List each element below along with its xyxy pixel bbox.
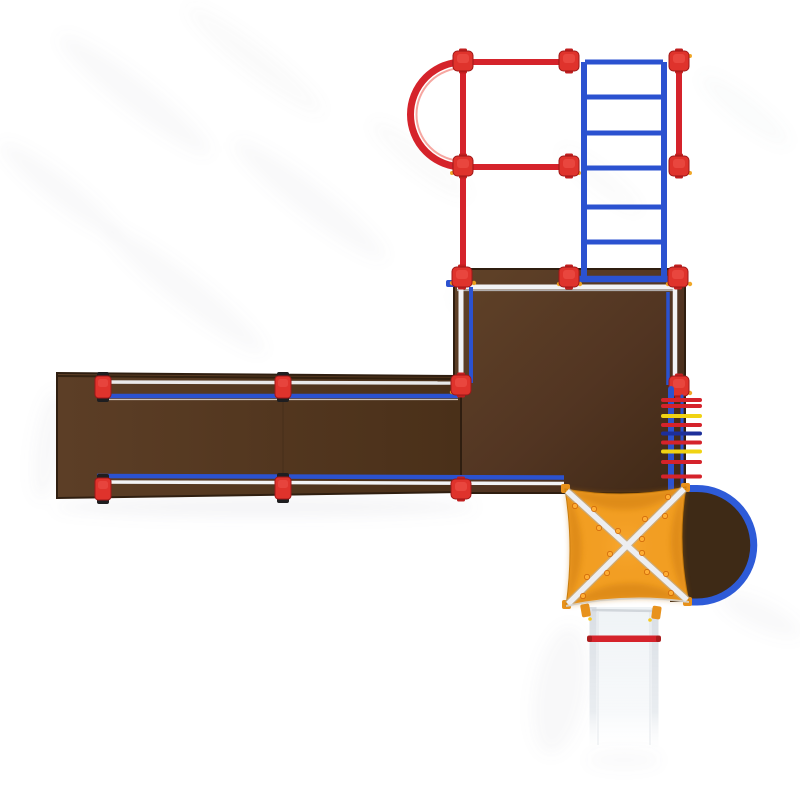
render-canvas <box>0 0 800 800</box>
ramp-post-cap <box>275 372 291 402</box>
post-cap <box>669 49 689 74</box>
slide-bracket-left <box>580 603 591 617</box>
ramp-bottom-rail-blue <box>97 476 564 478</box>
slide-rail-left <box>590 607 597 757</box>
straight-slide <box>580 603 662 757</box>
main-deck-surface <box>455 270 684 492</box>
post-cap <box>559 49 579 74</box>
slide-safety-bar-end <box>587 636 592 643</box>
slide-bracket-bolt <box>648 618 652 622</box>
playground-render <box>0 0 800 800</box>
post-cap <box>452 265 472 290</box>
post-cap <box>668 265 688 290</box>
slide-rail-right <box>652 608 659 757</box>
post-cap <box>453 49 473 74</box>
slide-bracket-bolt <box>588 617 592 621</box>
slide-top-edge <box>592 610 656 611</box>
slide-bracket-right <box>651 606 662 620</box>
main-deck <box>446 268 686 494</box>
shade-canopy <box>561 483 692 609</box>
slide-safety-bar-end <box>656 636 661 643</box>
ramp-post-cap <box>95 372 111 402</box>
post-cap <box>559 265 579 290</box>
slide-safety-bar <box>587 636 661 643</box>
ramp-bottom-rail-white <box>97 482 564 484</box>
ramp-post-cap <box>95 474 111 504</box>
post-cap <box>453 154 473 179</box>
slide-bed <box>597 607 652 757</box>
post-cap <box>451 373 471 398</box>
post-cap <box>451 477 471 502</box>
wall-climber <box>663 389 700 492</box>
post-cap <box>669 154 689 179</box>
post-cap <box>559 154 579 179</box>
ramp-post-cap <box>275 473 291 503</box>
